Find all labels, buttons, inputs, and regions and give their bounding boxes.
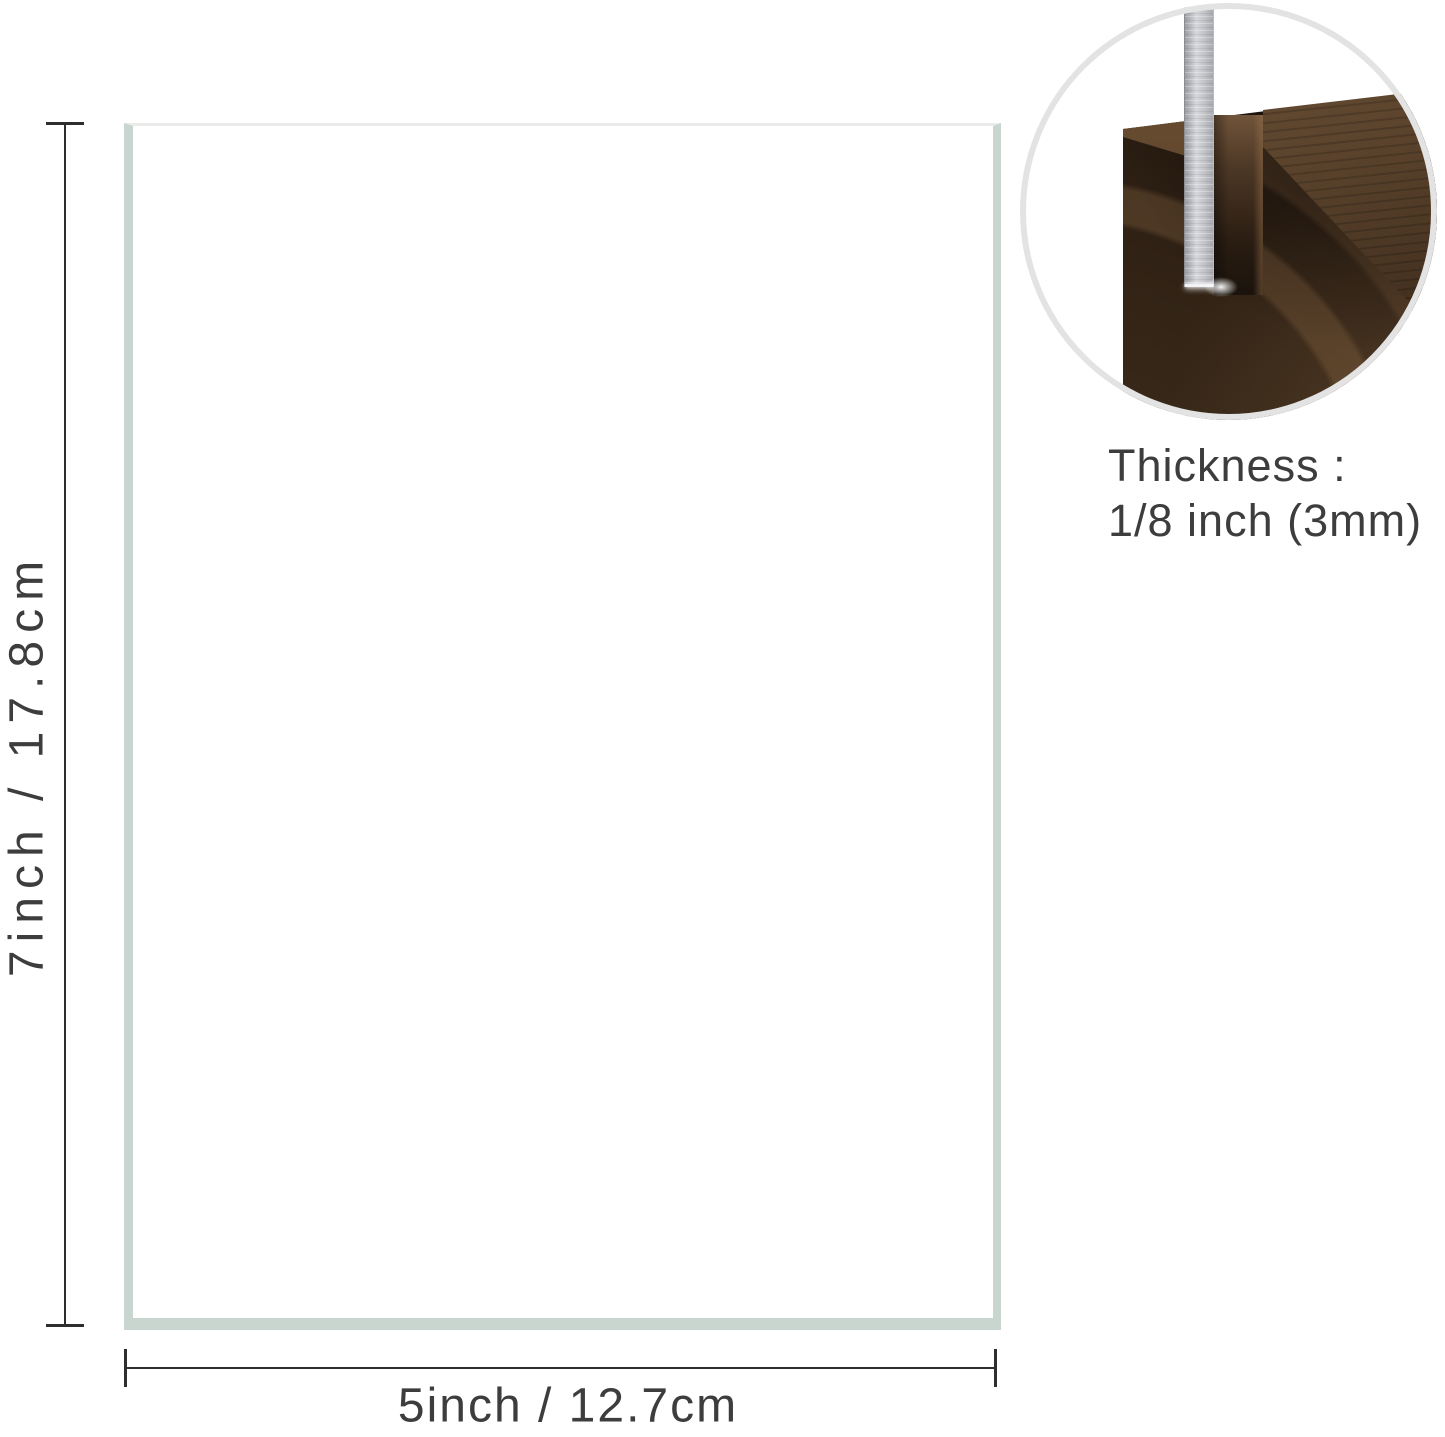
width-dimension-line	[125, 1367, 996, 1369]
acrylic-sheet	[124, 123, 1001, 1330]
height-dimension-bottom-tick	[46, 1324, 84, 1327]
width-label: 5inch / 12.7cm	[398, 1379, 738, 1434]
thickness-caption-title: Thickness :	[1108, 438, 1422, 493]
acrylic-edge-strip	[1184, 7, 1214, 287]
thickness-inset-circle	[1020, 3, 1437, 420]
height-dimension-top-tick	[46, 122, 84, 125]
thickness-caption-value: 1/8 inch (3mm)	[1108, 493, 1422, 548]
thickness-inset-photo	[1020, 3, 1437, 420]
thickness-caption: Thickness : 1/8 inch (3mm)	[1108, 438, 1422, 548]
height-dimension-line	[64, 123, 66, 1326]
acrylic-edge-glint	[1204, 277, 1238, 297]
width-dimension-right-tick	[994, 1349, 997, 1387]
wood-base-slot	[1214, 115, 1263, 295]
height-label: 7inch / 17.8cm	[0, 553, 55, 977]
product-dimension-diagram: 7inch / 17.8cm 5inch / 12.7cm Thickness …	[0, 0, 1445, 1437]
width-dimension-left-tick	[124, 1349, 127, 1387]
